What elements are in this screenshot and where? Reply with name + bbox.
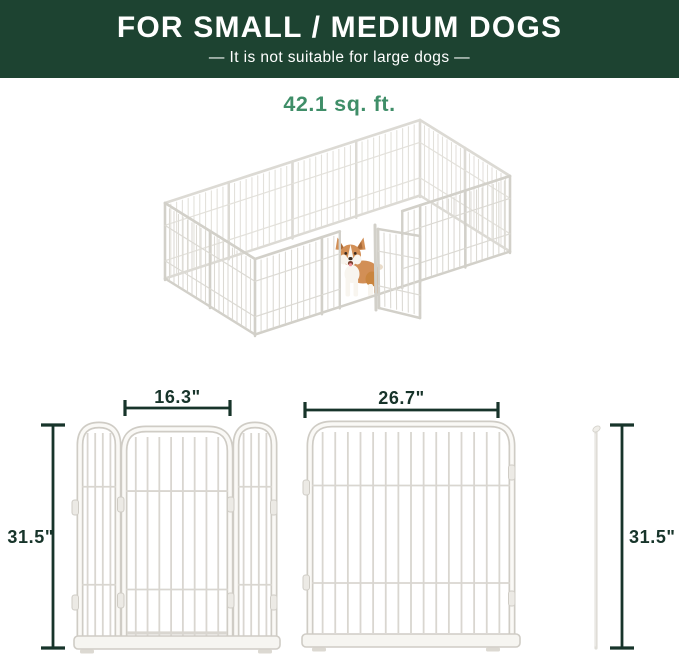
dimension-diagrams [0, 385, 679, 654]
playpen-wire-pen [165, 120, 510, 280]
banner-subtitle: — It is not suitable for large dogs — [209, 49, 470, 67]
rod-height-label: 31.5" [629, 527, 679, 548]
panel-height-label: 31.5" [2, 527, 54, 548]
ground-stake-rod [592, 425, 602, 648]
panel-grid-bars [82, 432, 510, 642]
playpen-isometric-illustration [125, 110, 565, 360]
header-banner: FOR SMALL / MEDIUM DOGS — It is not suit… [0, 0, 679, 78]
product-infographic: FOR SMALL / MEDIUM DOGS — It is not suit… [0, 0, 679, 654]
banner-title: FOR SMALL / MEDIUM DOGS [117, 13, 562, 43]
door-width-label: 16.3" [125, 387, 230, 408]
panel-width-label: 26.7" [330, 388, 473, 409]
open-gate-door [375, 225, 420, 318]
panel-tabs-and-feet [72, 465, 520, 654]
panel-frames [80, 424, 512, 646]
